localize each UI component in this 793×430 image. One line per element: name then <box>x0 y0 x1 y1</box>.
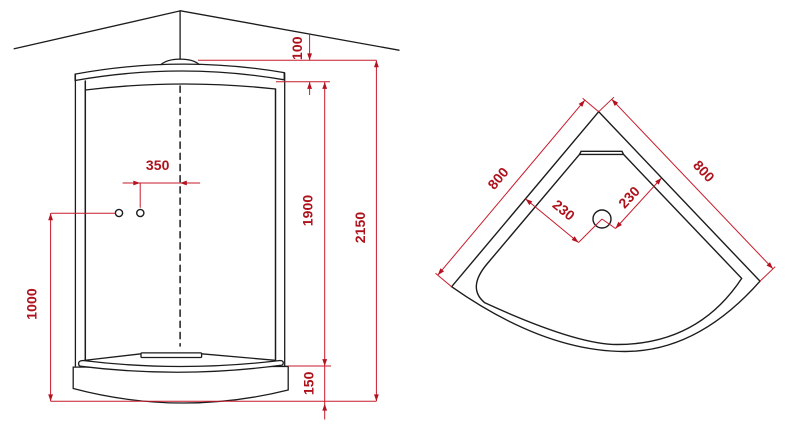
svg-text:800: 800 <box>690 157 718 185</box>
svg-text:800: 800 <box>484 164 512 192</box>
svg-text:2150: 2150 <box>352 212 368 244</box>
svg-text:100: 100 <box>289 36 305 60</box>
svg-text:350: 350 <box>146 157 170 173</box>
svg-text:1900: 1900 <box>300 195 316 227</box>
svg-text:230: 230 <box>550 196 579 223</box>
svg-text:230: 230 <box>615 183 643 211</box>
svg-text:150: 150 <box>301 371 317 395</box>
svg-text:1000: 1000 <box>24 288 40 320</box>
